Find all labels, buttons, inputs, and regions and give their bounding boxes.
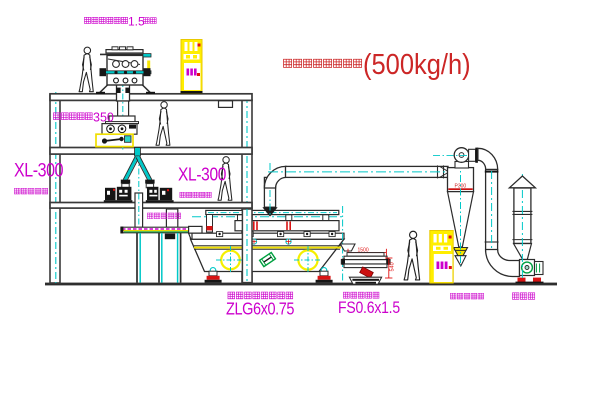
svg-text:P300: P300	[455, 183, 467, 189]
svg-text:1.5: 1.5	[128, 15, 145, 29]
svg-text:540: 540	[390, 262, 396, 271]
svg-text:(500kg/h): (500kg/h)	[363, 48, 471, 81]
svg-text:350: 350	[93, 110, 114, 124]
svg-text:FS0.6x1.5: FS0.6x1.5	[338, 299, 400, 317]
svg-text:XL-300: XL-300	[178, 163, 226, 185]
svg-text:ZLG6x0.75: ZLG6x0.75	[226, 300, 295, 318]
svg-text:XL-300: XL-300	[14, 159, 64, 181]
